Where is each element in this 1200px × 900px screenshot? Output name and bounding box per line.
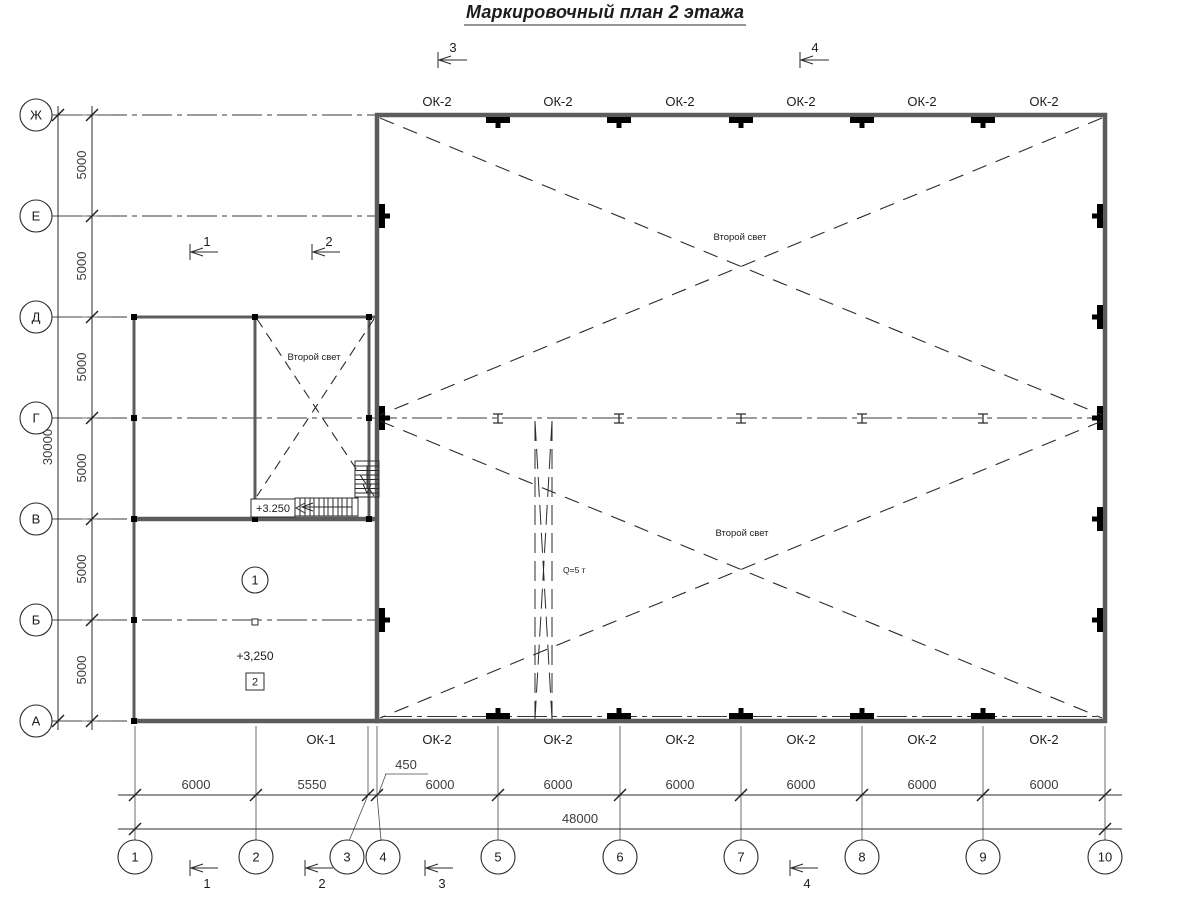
window-mark: ОК-2	[1029, 732, 1058, 747]
window-mark: ОК-2	[543, 94, 572, 109]
section-mark-4-bottom: 4	[790, 860, 818, 891]
dim-value: 6000	[426, 777, 455, 792]
col-axis-label: 1	[131, 850, 138, 865]
dim-value: 5000	[74, 656, 89, 685]
section-number: 4	[803, 876, 810, 891]
row-axis-label: Е	[32, 209, 41, 224]
dim-value: 5000	[74, 353, 89, 382]
dim-value: 6000	[666, 777, 695, 792]
window-mark: ОК-2	[786, 732, 815, 747]
dim-total: 48000	[562, 811, 598, 826]
telpher-track	[535, 421, 552, 719]
section-number: 3	[449, 40, 456, 55]
left-dimension-lines	[52, 106, 112, 730]
window-mark: ОК-2	[665, 732, 694, 747]
window-mark: ОК-1	[306, 732, 335, 747]
col-axis-label: 4	[379, 850, 386, 865]
grid-axis-lines	[52, 115, 1105, 841]
dim-value: 450	[395, 757, 417, 772]
col-axis-label: 9	[979, 850, 986, 865]
dim-value: 5000	[74, 151, 89, 180]
window-mark: ОК-2	[543, 732, 572, 747]
room-number-label: 2	[252, 677, 258, 689]
second-light-hall-top-label: Второй свет	[713, 232, 767, 243]
dim-value: 6000	[182, 777, 211, 792]
floor-plan-canvas: Маркировочный план 2 этажа	[0, 0, 1200, 900]
window-marks-bottom: ОК-1 ОК-2 ОК-2 ОК-2 ОК-2 ОК-2 ОК-2	[306, 732, 1058, 747]
section-marks: 3 4 1 2 1 2 3	[190, 40, 829, 891]
section-mark-3-bottom: 3	[425, 860, 453, 891]
row-axis-label: В	[32, 512, 41, 527]
second-light-hall-bottom-label: Второй свет	[715, 528, 769, 539]
dim-total: 30000	[40, 429, 55, 465]
room-marker-label: 1	[251, 573, 258, 588]
dim-value: 6000	[787, 777, 816, 792]
section-mark-1-bottom: 1	[190, 860, 218, 891]
window-mark: ОК-2	[1029, 94, 1058, 109]
section-mark-4-top: 4	[800, 40, 829, 68]
stair-level-label: +3.250	[256, 503, 290, 515]
window-mark: ОК-2	[422, 732, 451, 747]
row-axis-label: Д	[32, 310, 41, 325]
section-number: 2	[325, 234, 332, 249]
row-axis-label: Г	[32, 411, 39, 426]
column-symbol	[252, 619, 258, 625]
col-axis-label: 3	[343, 850, 350, 865]
section-mark-2-mid: 2	[312, 234, 340, 260]
dim-value: 6000	[1030, 777, 1059, 792]
col-axis-label: 5	[494, 850, 501, 865]
drawing-sheet: Маркировочный план 2 этажа	[0, 0, 1200, 900]
col-axis-label: 10	[1098, 850, 1112, 865]
section-number: 3	[438, 876, 445, 891]
page-title: Маркировочный план 2 этажа	[466, 2, 744, 22]
section-number: 4	[811, 40, 818, 55]
col-axis-label: 7	[737, 850, 744, 865]
dim-value: 5000	[74, 252, 89, 281]
window-mark: ОК-2	[786, 94, 815, 109]
section-mark-1-mid: 1	[190, 234, 218, 260]
second-light-room-label: Второй свет	[287, 352, 341, 363]
row-axis-label: А	[32, 714, 41, 729]
section-mark-3-top: 3	[438, 40, 467, 68]
dim-value: 6000	[908, 777, 937, 792]
crane-capacity-label: Q=5 т	[563, 565, 586, 575]
dim-value: 5550	[298, 777, 327, 792]
col-axis-bubbles: 1 2 3 4 5 6 7 8 9 10	[118, 840, 1122, 874]
dim-value: 5000	[74, 555, 89, 584]
col-axis-label: 6	[616, 850, 623, 865]
section-number: 2	[318, 876, 325, 891]
col-axis-label: 2	[252, 850, 259, 865]
row-axis-bubbles: Ж Е Д Г В Б А	[20, 99, 52, 737]
window-mark: ОК-2	[907, 94, 936, 109]
window-mark: ОК-2	[422, 94, 451, 109]
dim-value: 5000	[74, 454, 89, 483]
dim-value: 6000	[544, 777, 573, 792]
row-axis-label: Ж	[30, 108, 42, 123]
window-mark: ОК-2	[665, 94, 694, 109]
section-mark-2-bottom: 2	[305, 860, 333, 891]
section-number: 1	[203, 876, 210, 891]
section-number: 1	[203, 234, 210, 249]
row-axis-label: Б	[32, 613, 41, 628]
col-axis-label: 8	[858, 850, 865, 865]
window-mark: ОК-2	[907, 732, 936, 747]
room-level-label: +3,250	[236, 649, 273, 663]
window-marks-top: ОК-2 ОК-2 ОК-2 ОК-2 ОК-2 ОК-2	[422, 94, 1058, 109]
